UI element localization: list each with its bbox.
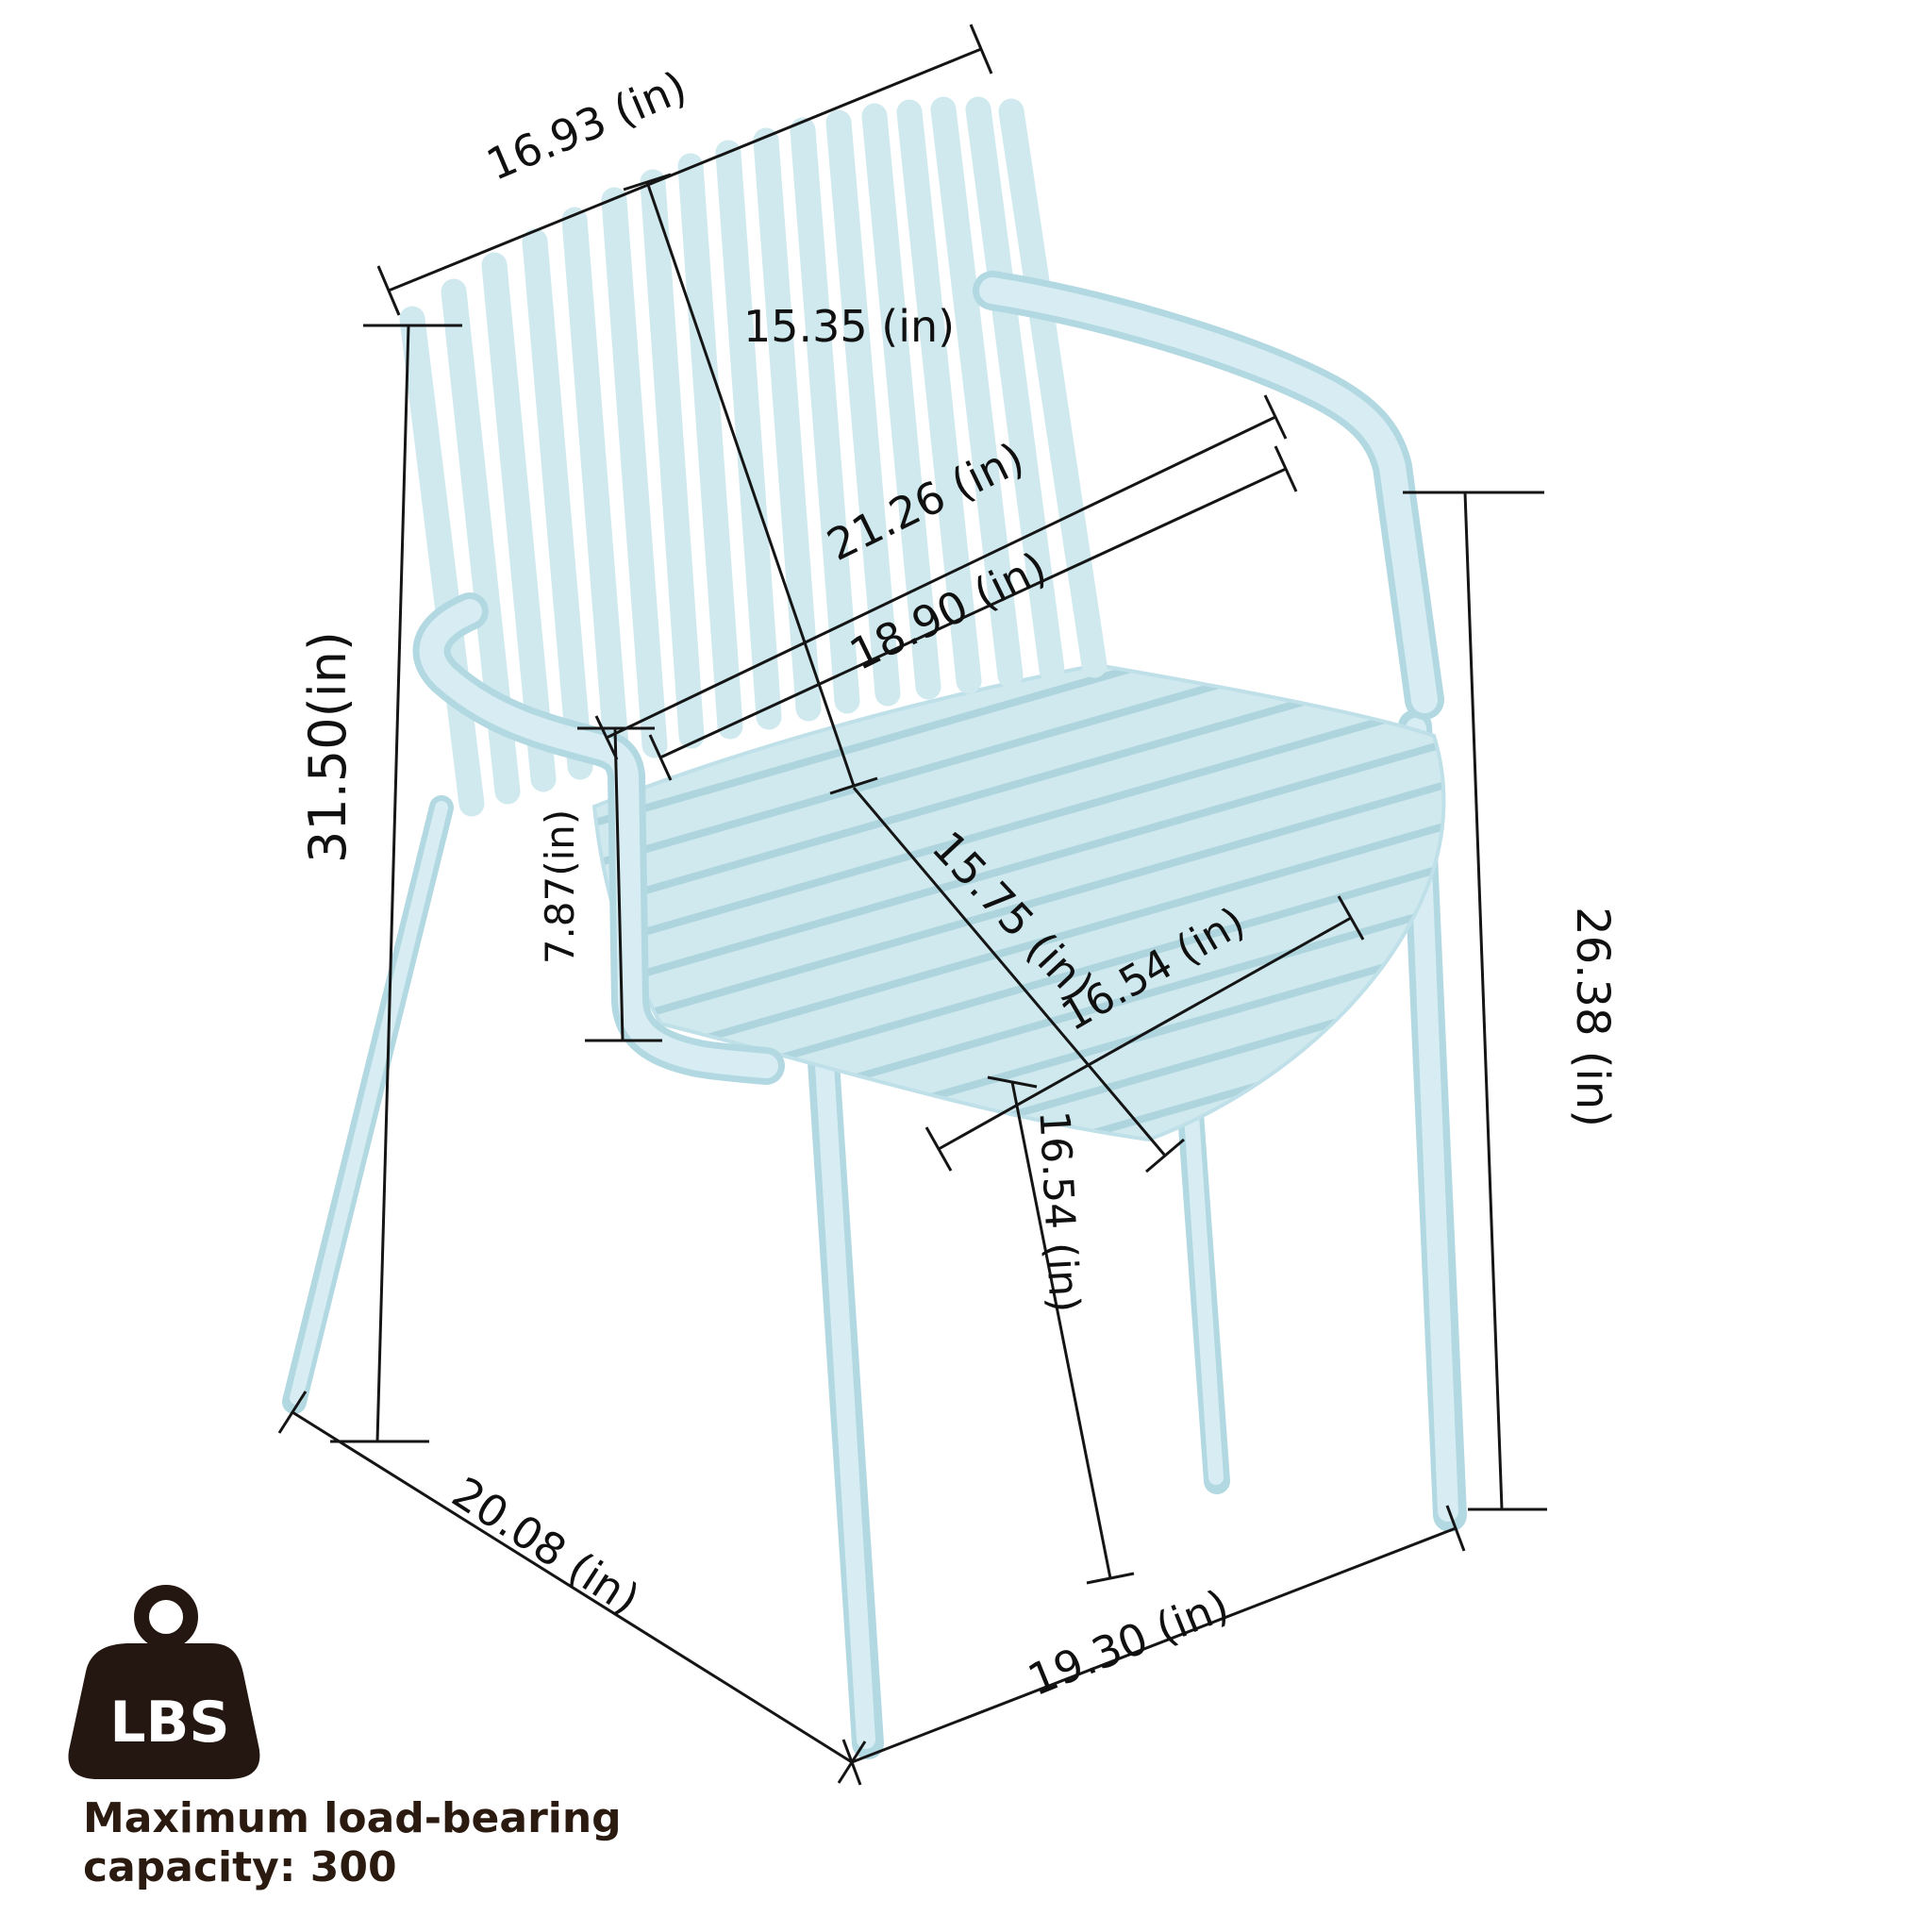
dim-back-top-width-label: 16.93 (in) (479, 61, 693, 191)
chair-dimension-diagram: 16.93 (in) 15.35 (in) 21.26 (in) 18.90 (… (0, 0, 1932, 1932)
load-capacity-caption-line2: capacity: 300 (83, 1843, 397, 1891)
back-left-leg-highlight (296, 808, 441, 1398)
weight-icon-handle (142, 1592, 191, 1641)
load-capacity-caption-line1: Maximum load-bearing (83, 1794, 622, 1842)
weight-icon-label: LBS (109, 1690, 229, 1756)
dim-total-depth-label: 20.08 (in) (443, 1467, 648, 1624)
dim-total-depth: 20.08 (in) (279, 1391, 865, 1783)
dim-overall-height-label: 31.50(in) (298, 631, 358, 863)
dim-armrest-floor-height-label: 26.38 (in) (1566, 907, 1619, 1127)
load-capacity-badge: LBS Maximum load-bearing capacity: 300 (68, 1592, 621, 1891)
dim-front-width-label: 19.30 (in) (1021, 1579, 1236, 1706)
dim-front-width: 19.30 (in) (843, 1506, 1464, 1785)
dim-backrest-height-label: 15.35 (in) (743, 301, 955, 352)
dim-armrest-above-seat-label: 7.87(in) (537, 809, 583, 965)
dim-seat-height-label: 16.54 (in) (1029, 1109, 1088, 1314)
dim-seat-height: 16.54 (in) (988, 1077, 1134, 1583)
product-dimension-page: 16.93 (in) 15.35 (in) 21.26 (in) 18.90 (… (0, 0, 1932, 1932)
